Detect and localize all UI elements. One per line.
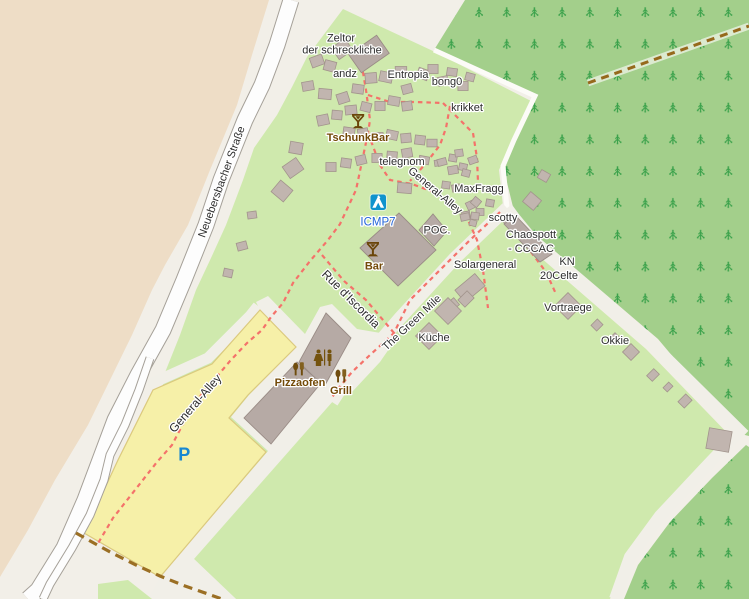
svg-text:- CCCAC: - CCCAC xyxy=(508,243,554,255)
svg-text:scotty: scotty xyxy=(489,212,518,224)
svg-text:ICMP7: ICMP7 xyxy=(360,217,395,229)
svg-text:P: P xyxy=(178,444,190,464)
svg-text:krikket: krikket xyxy=(451,102,483,114)
svg-text:der schreckliche: der schreckliche xyxy=(302,45,381,57)
svg-text:MaxFragg: MaxFragg xyxy=(454,183,504,195)
svg-text:Pizzaofen: Pizzaofen xyxy=(275,377,326,389)
svg-text:POC.: POC. xyxy=(424,225,451,237)
svg-text:Chaospott: Chaospott xyxy=(506,229,556,241)
svg-text:Küche: Küche xyxy=(418,332,449,344)
svg-text:TschunkBar: TschunkBar xyxy=(327,132,390,144)
svg-text:Zeltor: Zeltor xyxy=(327,33,355,45)
svg-text:Bar: Bar xyxy=(365,261,384,273)
svg-text:Grill: Grill xyxy=(330,385,352,397)
svg-text:Okkie: Okkie xyxy=(601,335,629,347)
svg-text:KN: KN xyxy=(559,256,574,268)
svg-text:Vortraege: Vortraege xyxy=(544,302,592,314)
svg-text:telegnom: telegnom xyxy=(379,156,424,168)
svg-text:20Celte: 20Celte xyxy=(540,270,578,282)
svg-text:bong0: bong0 xyxy=(432,76,463,88)
svg-text:andz: andz xyxy=(333,68,357,80)
svg-text:Solargeneral: Solargeneral xyxy=(454,259,516,271)
svg-text:Entropia: Entropia xyxy=(388,69,430,81)
